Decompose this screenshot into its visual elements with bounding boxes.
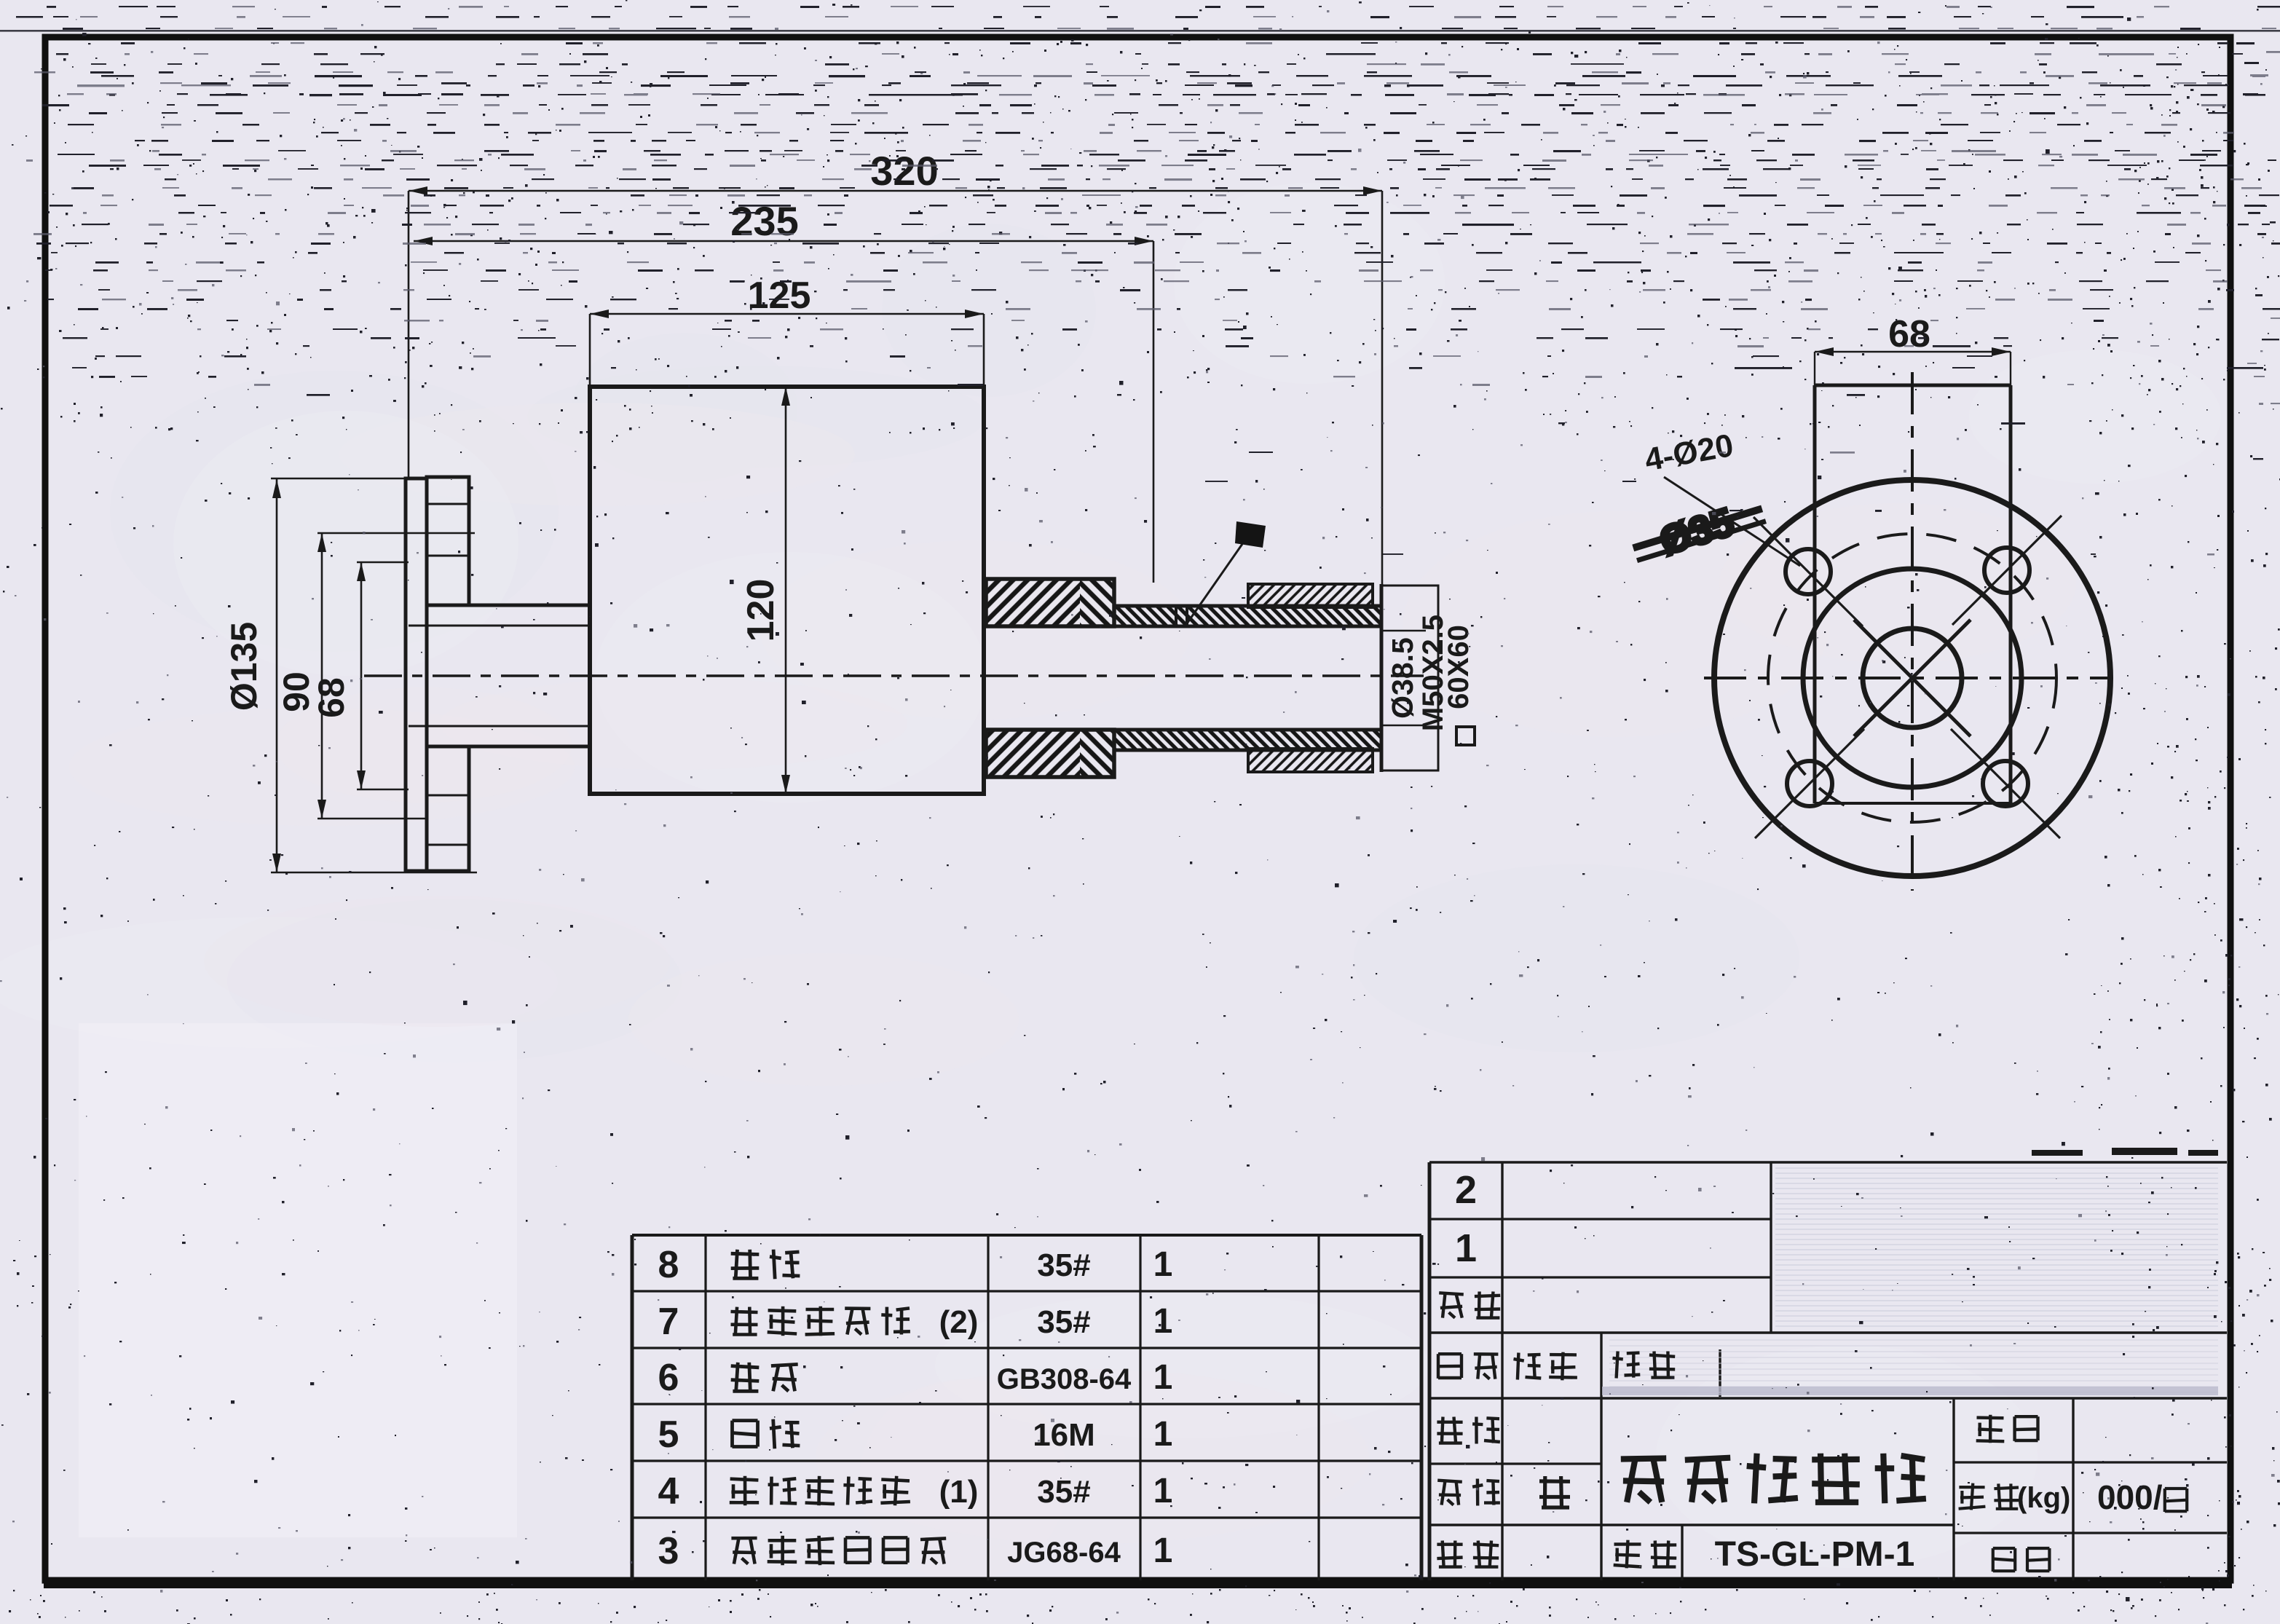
svg-text:6: 6 (658, 1357, 679, 1399)
svg-text:2: 2 (1455, 1168, 1477, 1212)
svg-text:68: 68 (311, 677, 352, 718)
svg-text:5: 5 (658, 1414, 679, 1456)
svg-text:000/: 000/ (2097, 1478, 2163, 1516)
svg-text:1: 1 (1153, 1532, 1173, 1570)
svg-text:7: 7 (658, 1301, 679, 1343)
svg-text:1: 1 (1153, 1245, 1173, 1284)
svg-text:1: 1 (1153, 1302, 1173, 1341)
svg-text:(1): (1) (939, 1474, 979, 1510)
svg-text:JG68-64: JG68-64 (1007, 1537, 1121, 1569)
svg-text:GB308-64: GB308-64 (997, 1363, 1132, 1395)
svg-text:125: 125 (748, 275, 811, 317)
svg-text:68: 68 (1888, 313, 1930, 355)
svg-text:1: 1 (1455, 1226, 1477, 1270)
svg-text:35#: 35# (1037, 1247, 1090, 1283)
svg-text:Ø135: Ø135 (224, 622, 264, 711)
svg-text:8: 8 (658, 1244, 679, 1286)
svg-text:3: 3 (658, 1530, 679, 1572)
svg-text:35#: 35# (1037, 1304, 1090, 1340)
svg-text:1: 1 (1153, 1415, 1173, 1454)
svg-text:35#: 35# (1037, 1474, 1090, 1510)
svg-text:(2): (2) (939, 1304, 979, 1340)
svg-text:1: 1 (1153, 1358, 1173, 1397)
svg-text:320: 320 (870, 148, 938, 194)
svg-text:4: 4 (658, 1470, 679, 1513)
svg-text:Ø38.5: Ø38.5 (1386, 637, 1419, 719)
svg-text:16M: 16M (1033, 1417, 1095, 1453)
svg-text:TS-GL-PM-1: TS-GL-PM-1 (1715, 1535, 1915, 1574)
svg-text:1: 1 (1153, 1472, 1173, 1510)
svg-text:(kg): (kg) (2017, 1482, 2070, 1514)
svg-text:60X60: 60X60 (1443, 625, 1475, 709)
